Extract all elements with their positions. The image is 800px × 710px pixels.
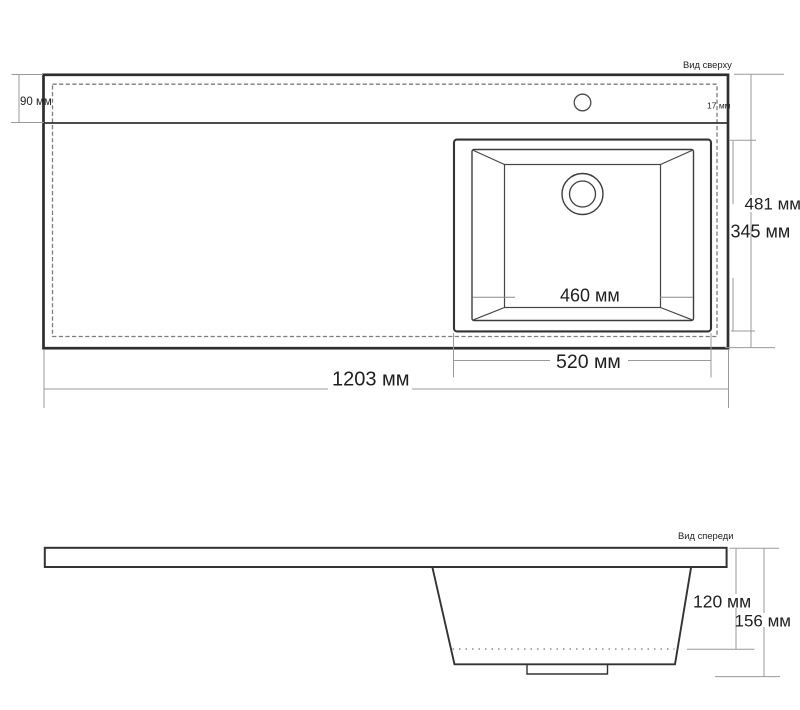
svg-text:Вид спереди: Вид спереди <box>678 530 733 541</box>
svg-text:345 мм: 345 мм <box>731 222 791 242</box>
svg-text:90 мм: 90 мм <box>20 96 52 108</box>
svg-text:481 мм: 481 мм <box>745 195 800 214</box>
svg-text:520 мм: 520 мм <box>556 351 621 373</box>
svg-text:156 мм: 156 мм <box>735 612 791 631</box>
svg-text:1203 мм: 1203 мм <box>332 369 410 391</box>
svg-text:17 мм: 17 мм <box>707 101 731 111</box>
svg-text:Вид сверху: Вид сверху <box>683 59 732 70</box>
svg-text:120 мм: 120 мм <box>693 592 751 612</box>
svg-text:460 мм: 460 мм <box>560 286 620 306</box>
